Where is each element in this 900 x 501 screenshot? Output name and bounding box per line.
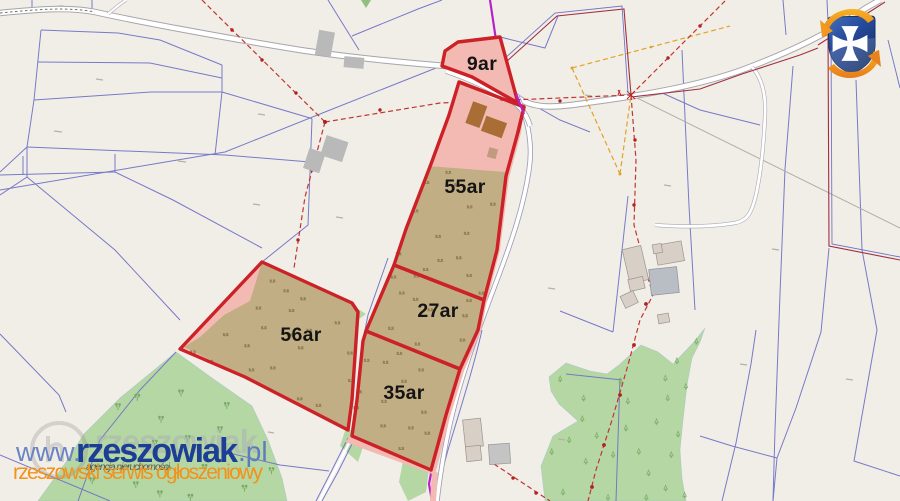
svg-text:35ar: 35ar	[383, 382, 424, 404]
svg-text:rzeszowski serwis ogłoszeniowy: rzeszowski serwis ogłoszeniowy	[13, 461, 264, 484]
svg-text:55ar: 55ar	[444, 176, 485, 198]
svg-text:9ar: 9ar	[467, 53, 497, 75]
svg-text:56ar: 56ar	[280, 324, 321, 346]
svg-text:27ar: 27ar	[417, 300, 458, 322]
